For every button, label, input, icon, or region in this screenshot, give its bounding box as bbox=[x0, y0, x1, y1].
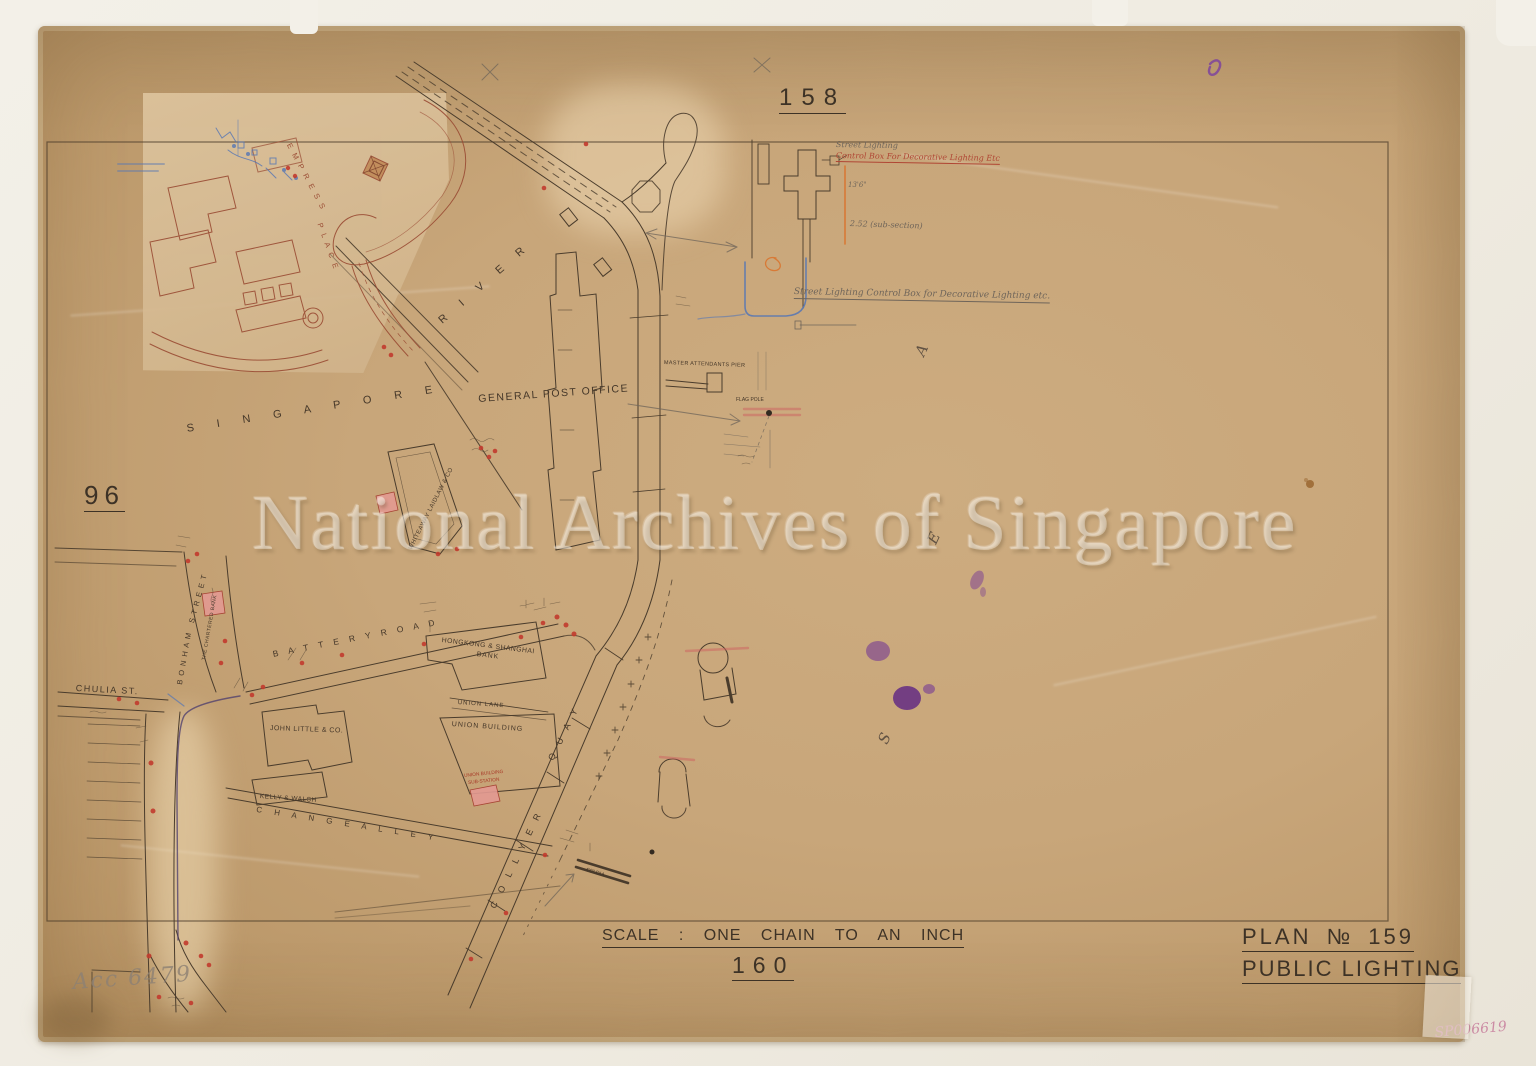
paper-edge-notch bbox=[290, 0, 318, 34]
paper-edge-notch bbox=[1092, 0, 1128, 26]
sheet-frame-border bbox=[47, 142, 1388, 921]
buildings bbox=[252, 252, 602, 805]
map-drawing bbox=[0, 0, 1536, 1066]
dimension-ticks bbox=[90, 296, 754, 1006]
purple-scribble bbox=[1209, 60, 1220, 74]
singapore-river-banks bbox=[55, 238, 522, 566]
pier-structures bbox=[576, 643, 736, 883]
adjacent-plan-left: 96 bbox=[84, 482, 125, 512]
control-box-diagram bbox=[666, 140, 856, 392]
survey-dots bbox=[650, 410, 773, 855]
roads bbox=[58, 62, 697, 1012]
tape-patch bbox=[1422, 975, 1471, 1039]
paper-corner-notch bbox=[1496, 0, 1536, 46]
highlight-strokes bbox=[660, 409, 800, 760]
ink-stains bbox=[866, 478, 1314, 710]
pencil-marks bbox=[482, 58, 770, 906]
inset-blue-notes bbox=[118, 120, 298, 180]
adjacent-plan-top: 158 bbox=[779, 86, 846, 114]
scanned-map-page: S I N G A P O R ER I V E RE M P R E S SP… bbox=[0, 0, 1536, 1066]
seawall bbox=[522, 580, 672, 938]
substation-blocks bbox=[202, 492, 500, 806]
service-lines bbox=[168, 166, 845, 940]
adjacent-plan-bottom: 160 bbox=[732, 954, 794, 981]
plan-number: PLAN № 159 bbox=[1242, 926, 1414, 952]
scale-note: SCALE : ONE CHAIN TO AN INCH bbox=[602, 928, 964, 948]
